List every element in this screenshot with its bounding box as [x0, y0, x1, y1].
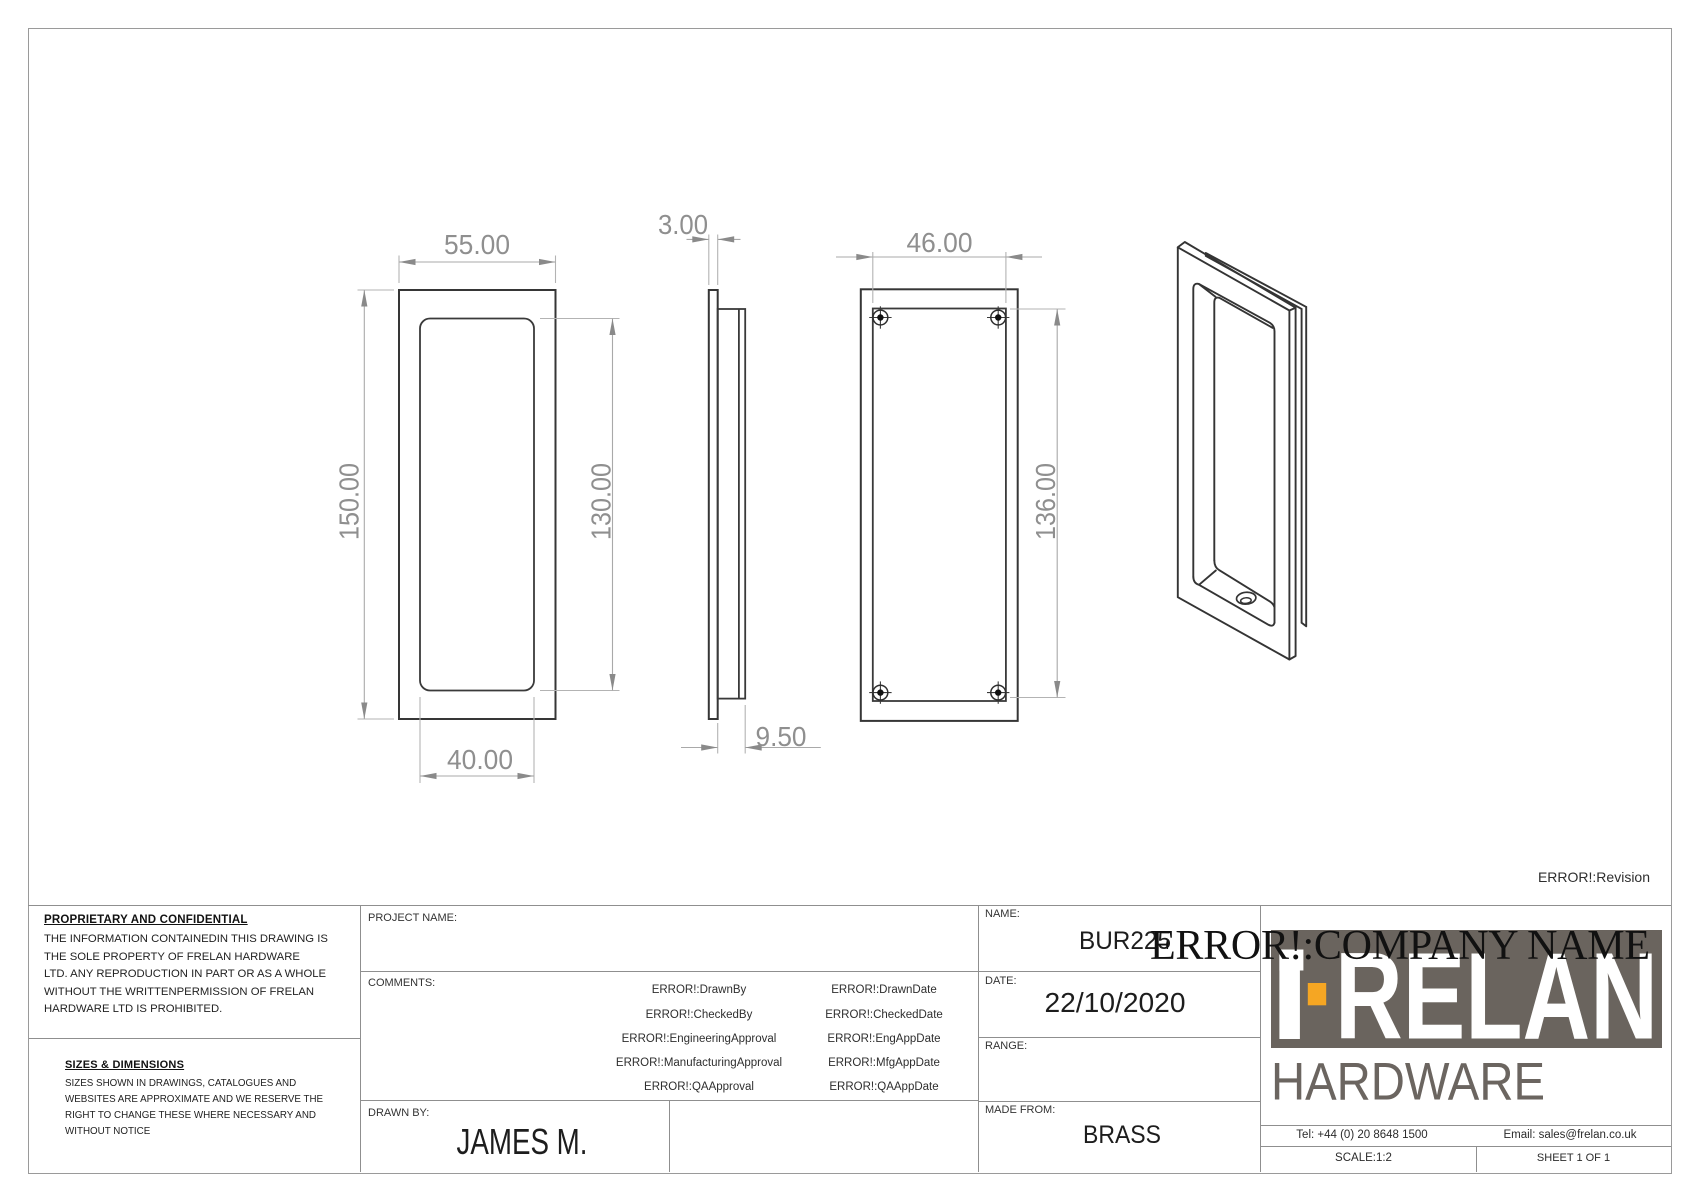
- svg-text:JAMES M.: JAMES M.: [457, 1121, 588, 1162]
- svg-text:3.00: 3.00: [658, 209, 708, 240]
- svg-text:55.00: 55.00: [444, 229, 510, 260]
- svg-text:40.00: 40.00: [447, 744, 513, 775]
- svg-text:46.00: 46.00: [907, 227, 973, 258]
- svg-text:136.00: 136.00: [1030, 463, 1061, 540]
- svg-text:150.00: 150.00: [334, 463, 365, 540]
- svg-text:BRASS: BRASS: [1083, 1121, 1161, 1149]
- svg-text:9.50: 9.50: [756, 721, 807, 752]
- svg-text:22/10/2020: 22/10/2020: [1045, 987, 1186, 1018]
- svg-text:130.00: 130.00: [586, 463, 617, 540]
- svg-text:HARDWARE: HARDWARE: [1271, 1053, 1545, 1111]
- svg-text:ERROR!:COMPANY NAME: ERROR!:COMPANY NAME: [1150, 923, 1650, 969]
